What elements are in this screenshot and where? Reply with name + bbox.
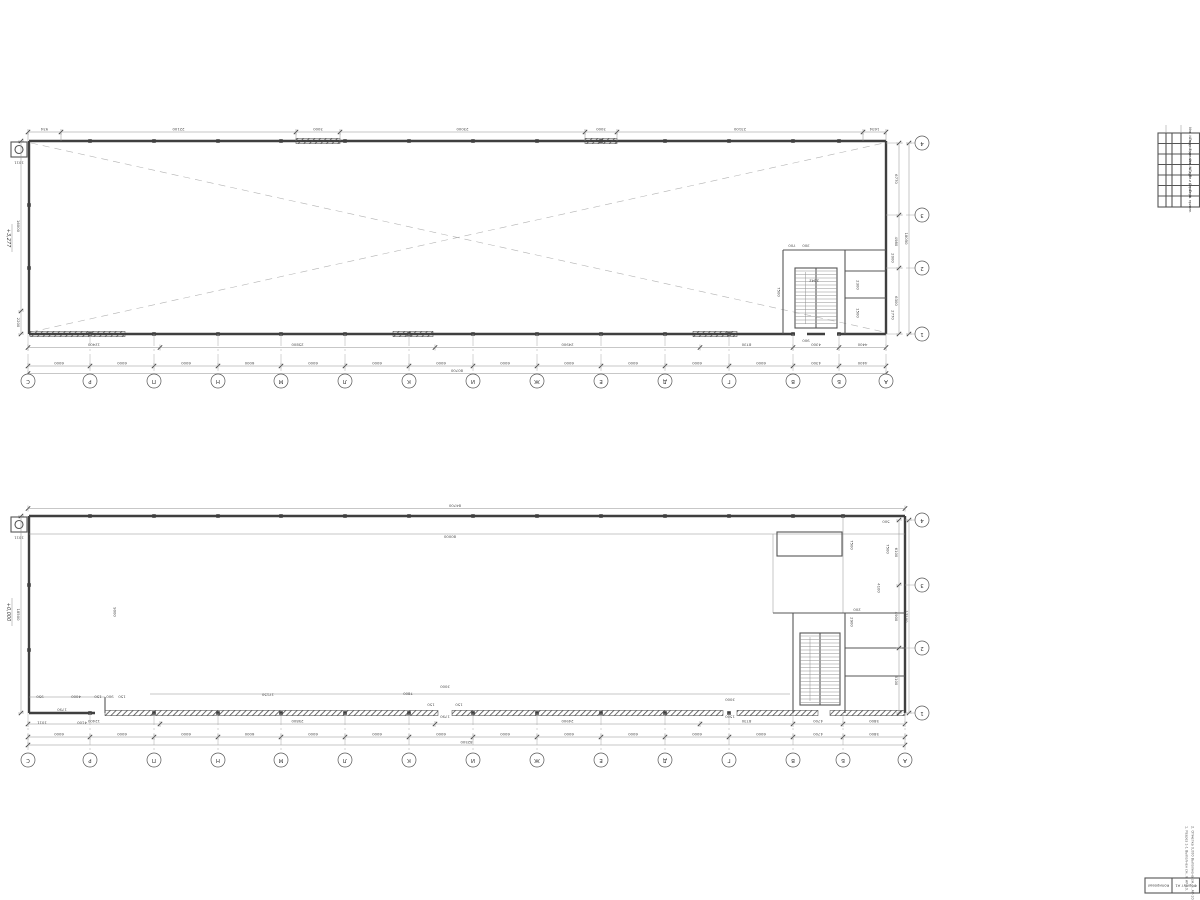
ground-floor-axis-lines	[28, 520, 915, 753]
dimension-label: 4400	[857, 361, 867, 366]
hatched-wall-segment	[30, 331, 125, 336]
dimension-label: Д	[663, 757, 667, 763]
dimension-label: 6000	[436, 361, 446, 366]
dimension-label: 1790	[57, 708, 67, 713]
second-floor-stair-core	[783, 250, 886, 334]
dimension-label: Г	[727, 757, 730, 763]
dimension-label: 6000	[308, 732, 318, 737]
dimension-label: 900	[802, 339, 810, 344]
dimension-label: 12400	[87, 343, 100, 348]
dimension-label: 6000	[308, 361, 318, 366]
corner-label-upper: 1011	[14, 161, 24, 166]
dimension-label: Н	[216, 757, 220, 763]
dimension-label: 6000	[628, 732, 638, 737]
dimension-label: 8730	[741, 343, 751, 348]
dimension-label: 1	[920, 710, 923, 716]
dimension-label: М	[278, 757, 283, 763]
dimension-label: Е	[599, 757, 603, 763]
dimension-label: 24900	[561, 343, 574, 348]
column-mark	[27, 583, 31, 587]
dimension-label: 6000	[372, 361, 382, 366]
dimension-label: 4	[920, 517, 924, 523]
column-mark	[279, 514, 283, 518]
generated-linework: 9342210030002300030002310016341240025800…	[11, 125, 1200, 893]
dimension-label: К	[407, 757, 411, 763]
column-mark	[88, 139, 92, 143]
dimension-label: 1790	[440, 715, 450, 720]
column-mark	[216, 514, 220, 518]
dimension-label: 6100	[894, 548, 899, 558]
dimension-label: И	[471, 757, 475, 763]
dimension-label: И	[471, 378, 475, 384]
dimension-label: А	[903, 757, 907, 763]
dimension-label: 300	[802, 244, 810, 249]
dimension-label: 6770	[894, 174, 899, 184]
drawing-sheet: 9342210030002300030002310016341240025800…	[0, 0, 1200, 900]
dimension-label: 4400	[857, 343, 867, 348]
hatched-wall-segment	[830, 710, 905, 715]
dimension-label: 17100	[904, 610, 909, 623]
dimension-label: 934	[40, 127, 48, 132]
dimension-label: Ж	[534, 378, 540, 384]
column-mark	[88, 514, 92, 518]
dimension-label: 6000	[117, 361, 127, 366]
dimension-label: С	[26, 378, 30, 384]
column-mark	[343, 514, 347, 518]
footer-format: Формат А1	[1175, 883, 1197, 888]
dimension-label: Б	[837, 378, 841, 384]
dimension-label: 80000	[443, 535, 456, 540]
column-mark	[152, 139, 156, 143]
dimension-label: 1500	[725, 715, 735, 720]
elevation-upper: +3,277	[5, 229, 11, 248]
dimension-label: 9000	[113, 607, 118, 617]
dimension-label: 17150	[261, 693, 274, 698]
dimension-label: 5800	[869, 719, 879, 724]
floor-plans-canvas: 9342210030002300030002310016341240025800…	[0, 0, 1200, 900]
ground-floor-plan-walls	[11, 514, 905, 715]
dimension-label: Н	[216, 378, 220, 384]
dimension-label: В	[791, 757, 795, 763]
dimension-label: К	[407, 378, 411, 384]
second-floor-axis-lines	[28, 143, 915, 374]
dimension-label: С	[26, 757, 30, 763]
dimension-label: 700	[788, 244, 796, 249]
dimension-label: Б	[841, 757, 845, 763]
column-mark	[27, 203, 31, 207]
column-mark	[727, 139, 731, 143]
footer-copied: Копировал	[1147, 883, 1169, 888]
dimension-label: 4100	[77, 721, 87, 726]
dimension-label: 5800	[869, 732, 879, 737]
dimension-label: 7500	[850, 540, 855, 550]
hatched-wall-segment	[296, 138, 340, 143]
column-mark	[216, 139, 220, 143]
dimension-label: 4700	[813, 719, 823, 724]
dimension-label: 6000	[692, 732, 702, 737]
dimension-label: Д	[663, 378, 667, 384]
dimension-label: 23000	[456, 127, 469, 132]
dimension-label: 4700	[813, 732, 823, 737]
dimension-label: 6000	[756, 732, 766, 737]
column-mark	[791, 514, 795, 518]
dimension-label: 6000	[372, 732, 382, 737]
column-mark	[663, 514, 667, 518]
dimension-label: Ж	[534, 757, 540, 763]
dimension-label: 3000	[313, 127, 323, 132]
elevation-marks: +3,277 +0,000	[5, 224, 12, 626]
second-floor-hall-diagonals	[31, 143, 884, 332]
dimension-label: 1	[920, 331, 923, 337]
column-mark	[535, 514, 539, 518]
dimension-label: 500	[882, 520, 890, 525]
note-1: 1. Разрез 1-1 Выполнен см. л. АР-10.	[1185, 826, 1189, 891]
dimension-label: 3000	[725, 698, 735, 703]
dimension-label: 6000	[244, 361, 254, 366]
column-mark	[727, 514, 731, 518]
dimension-label: 16000	[16, 220, 21, 233]
column-mark	[152, 514, 156, 518]
dimension-label: 82500	[460, 740, 473, 745]
dimension-label: В	[791, 378, 795, 384]
dimension-label: 2200	[16, 318, 21, 328]
column-mark	[471, 139, 475, 143]
dimension-label: 3000	[596, 127, 606, 132]
second-floor-dimensions: 9342210030002300030002310016341240025800…	[16, 127, 912, 376]
column-mark	[27, 266, 31, 270]
dimension-label: 2642	[809, 279, 819, 284]
dimension-label: 1011	[37, 721, 47, 726]
column-mark	[471, 514, 475, 518]
column-mark	[599, 139, 603, 143]
dimension-label: 18050	[904, 232, 909, 245]
dimension-label: 22100	[172, 127, 185, 132]
dimension-label: 25800	[291, 343, 304, 348]
dimension-label: 4000	[71, 695, 81, 700]
dimension-label: 150	[94, 695, 102, 700]
column-mark	[407, 139, 411, 143]
dimension-label: 150	[118, 695, 126, 700]
dimension-label: 6000	[244, 732, 254, 737]
dimension-label: 1500	[856, 308, 861, 318]
dimension-label: 6000	[564, 361, 574, 366]
dimension-label: 2	[920, 265, 923, 271]
dimension-label: 84700	[448, 504, 461, 509]
dimension-label: 7500	[886, 544, 891, 554]
dimension-label: 1634	[869, 127, 879, 132]
hatched-wall-segment	[452, 710, 723, 715]
corner-label-lower: 1011	[14, 536, 24, 541]
dimension-label: 6000	[117, 732, 127, 737]
stamp-block-grid	[1158, 125, 1200, 207]
dimension-label: П	[152, 757, 156, 763]
dimension-label: 23100	[733, 127, 746, 132]
dimension-label: 6000	[181, 732, 191, 737]
dimension-label: 200	[853, 608, 861, 613]
dimension-label: 4900	[894, 612, 899, 622]
dimension-label: 6000	[628, 361, 638, 366]
dimension-label: 3	[920, 212, 923, 218]
dimension-label: 18500	[16, 608, 21, 621]
dimension-label: 2000	[891, 253, 896, 263]
dimension-label: 25800	[291, 719, 304, 724]
dimension-label: П	[152, 378, 156, 384]
dimension-label: 150	[455, 703, 463, 708]
column-mark	[407, 514, 411, 518]
column-mark	[343, 139, 347, 143]
dimension-label: Л	[343, 378, 347, 384]
dimension-label: М	[278, 378, 283, 384]
dimension-label: 24900	[561, 719, 574, 724]
dimension-label: 6000	[756, 361, 766, 366]
dimension-label: 8730	[741, 719, 751, 724]
dimension-label: 6000	[692, 361, 702, 366]
dimension-label: 12400	[87, 719, 100, 724]
dimension-label: 80700	[450, 369, 463, 374]
second-floor-plan-walls	[11, 138, 886, 336]
dimension-label: Г	[727, 378, 730, 384]
dimension-label: 6000	[54, 361, 64, 366]
dimension-label: 4300	[811, 361, 821, 366]
dimension-label: 2300	[856, 280, 861, 290]
column-mark	[663, 139, 667, 143]
dimension-label: 3000	[440, 685, 450, 690]
column-mark	[27, 648, 31, 652]
ground-floor-stair-core	[773, 613, 905, 713]
dimension-label: 7800	[403, 692, 413, 697]
ground-floor-interior	[29, 516, 905, 713]
dimension-label: 950	[36, 695, 44, 700]
dimension-label: 2	[920, 645, 923, 651]
dimension-label: А	[884, 378, 888, 384]
column-mark	[837, 139, 841, 143]
dimension-label: 4100	[877, 583, 882, 593]
stamp-row: Перв. примен.	[1188, 190, 1192, 213]
dock-protrusion	[777, 532, 842, 556]
dimension-label: 6000	[500, 732, 510, 737]
dimension-label: Л	[343, 757, 347, 763]
dimension-label: 4	[920, 140, 924, 146]
dimension-label: 2770	[891, 310, 896, 320]
dimension-label: 4300	[811, 343, 821, 348]
dimension-label: 3	[920, 582, 923, 588]
dimension-label: 7500	[777, 287, 782, 297]
column-mark	[279, 139, 283, 143]
dimension-label: 6000	[436, 732, 446, 737]
dimension-label: 2900	[850, 617, 855, 627]
column-mark	[535, 139, 539, 143]
column-mark	[791, 139, 795, 143]
dimension-label: 150	[427, 703, 435, 708]
dimension-label: 6000	[564, 732, 574, 737]
dimension-label: 900	[106, 695, 114, 700]
dimension-label: 6300	[894, 296, 899, 306]
hatched-wall-segment	[737, 710, 818, 715]
dimension-label: 6100	[894, 676, 899, 686]
dimension-label: Е	[599, 378, 603, 384]
hatched-wall-segment	[393, 331, 433, 336]
dimension-label: 6000	[181, 361, 191, 366]
corner-labels: 1011 1011	[14, 161, 24, 541]
elevation-lower: +0,000	[5, 603, 11, 622]
dimension-label: 4980	[894, 237, 899, 247]
stamp-block-labels: Инв. № подл. Подп. и дата Взам. инв. № И…	[1188, 127, 1192, 213]
dimension-label: 6000	[500, 361, 510, 366]
dimension-label: 6000	[54, 732, 64, 737]
column-mark	[599, 514, 603, 518]
